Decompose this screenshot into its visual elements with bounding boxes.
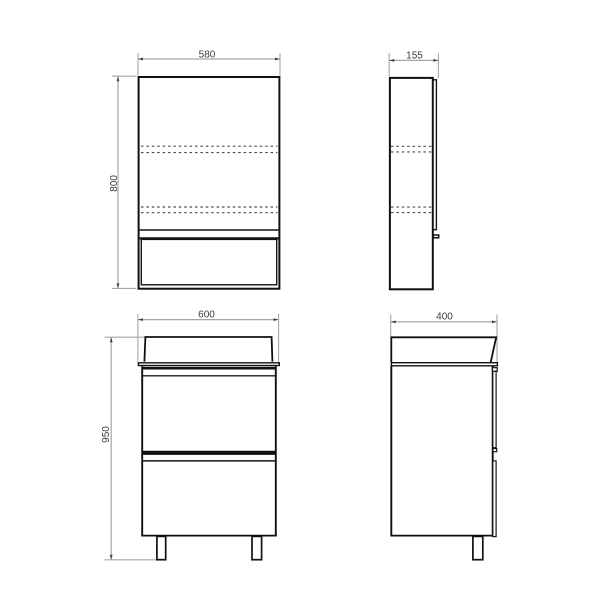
svg-text:580: 580 bbox=[199, 49, 216, 60]
svg-text:400: 400 bbox=[436, 312, 453, 323]
svg-text:600: 600 bbox=[198, 309, 215, 320]
svg-text:155: 155 bbox=[406, 51, 423, 62]
svg-text:800: 800 bbox=[109, 175, 120, 192]
svg-text:950: 950 bbox=[101, 426, 112, 443]
